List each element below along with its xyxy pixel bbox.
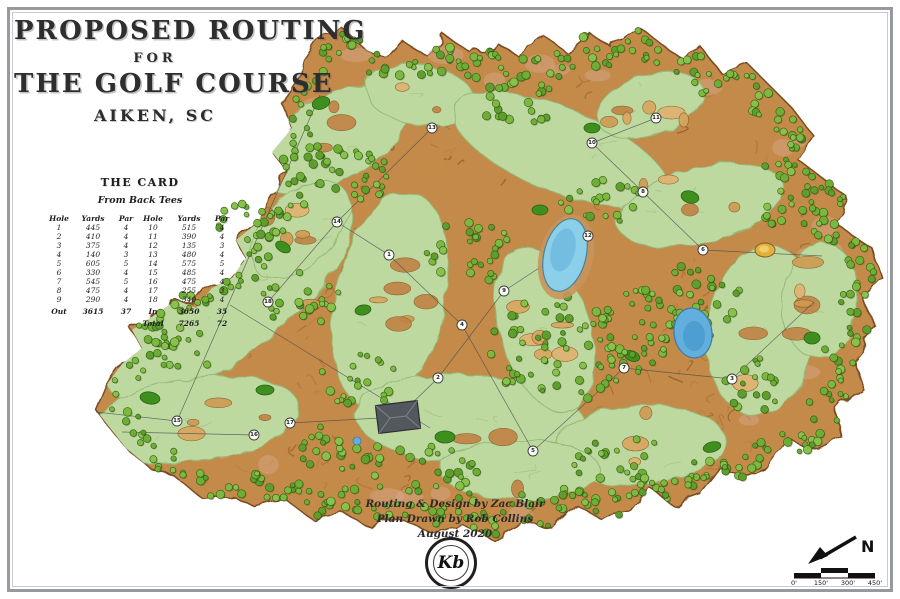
scorecard-cell: 4 (210, 250, 234, 259)
scorecard-cell: Hole (46, 214, 72, 223)
hole-marker: 6 (698, 245, 708, 255)
svg-text:5: 5 (531, 448, 535, 454)
title-block: PROPOSED ROUTING FOR THE GOLF COURSE AIK… (14, 16, 296, 125)
clubhouse-building (375, 401, 420, 434)
svg-text:15: 15 (173, 418, 181, 424)
scorecard-cell: 4 (210, 223, 234, 232)
scorecard-cell: 255 (168, 286, 210, 295)
hole-marker: 7 (619, 363, 629, 373)
compass-and-scale: N 0' 150' 300' 450' (786, 530, 890, 586)
scorecard-cell: Yards (168, 214, 210, 223)
scorecard-cell: 135 (168, 241, 210, 250)
landmark-layer (755, 243, 775, 257)
scorecard-cell: Total (138, 316, 168, 328)
title-for: FOR (14, 51, 296, 66)
scorecard-cell: 485 (168, 268, 210, 277)
svg-text:150': 150' (814, 579, 828, 586)
scorecard-table: HoleYardsParHoleYardsPar1445410515424104… (46, 214, 234, 328)
logo-monogram: Kb (433, 545, 469, 581)
scorecard-cell: 4 (210, 277, 234, 286)
svg-text:10: 10 (588, 140, 596, 146)
course-location: AIKEN, SC (14, 106, 296, 125)
svg-text:0': 0' (791, 579, 797, 586)
scorecard-cell: 5 (114, 259, 138, 268)
svg-text:300': 300' (841, 579, 855, 586)
scorecard-cell: 6 (46, 268, 72, 277)
scorecard-cell: 545 (72, 277, 114, 286)
hole-marker: 13 (427, 123, 437, 133)
hole-marker: 11 (651, 113, 661, 123)
scorecard-cell: 5 (46, 259, 72, 268)
scorecard-cell (72, 316, 114, 328)
scorecard-cell: 4 (114, 286, 138, 295)
scorecard-cell: 4 (210, 232, 234, 241)
scorecard-cell: Yards (72, 214, 114, 223)
page-title: PROPOSED ROUTING (14, 16, 296, 46)
hole-marker: 15 (172, 416, 182, 426)
north-arrow-icon: N (798, 530, 878, 564)
hole-marker: 17 (285, 418, 295, 428)
svg-text:3: 3 (730, 376, 734, 382)
svg-text:18: 18 (264, 299, 272, 305)
hole-marker: 12 (583, 231, 593, 241)
scorecard-cell: 10 (138, 223, 168, 232)
scorecard-cell: 290 (72, 295, 114, 304)
svg-text:8: 8 (641, 189, 645, 195)
scorecard-cell: 445 (72, 223, 114, 232)
scorecard-cell: 18 (138, 295, 168, 304)
scale-bar: 0' 150' 300' 450' (788, 564, 888, 586)
svg-text:11: 11 (652, 115, 660, 121)
scorecard-title: THE CARD (38, 176, 242, 189)
hole-marker: 9 (499, 286, 509, 296)
hole-marker: 5 (528, 446, 538, 456)
scorecard-cell: 8 (46, 286, 72, 295)
svg-text:6: 6 (701, 247, 705, 253)
scorecard-cell (46, 316, 72, 328)
scorecard-cell: 4 (114, 223, 138, 232)
scorecard-cell: 1 (46, 223, 72, 232)
scorecard-cell: 11 (138, 232, 168, 241)
scorecard-cell: 12 (138, 241, 168, 250)
hole-marker: 16 (249, 430, 259, 440)
scorecard-cell: 14 (138, 259, 168, 268)
scorecard-cell: 4 (210, 295, 234, 304)
hole-marker: 3 (727, 374, 737, 384)
scorecard-cell: Par (210, 214, 234, 223)
scorecard-cell: 4 (46, 250, 72, 259)
scorecard-cell: 35 (210, 304, 234, 316)
scorecard-cell: 480 (168, 250, 210, 259)
scorecard-cell: 475 (168, 277, 210, 286)
scorecard-cell: Out (46, 304, 72, 316)
hole-marker: 18 (263, 297, 273, 307)
scorecard-cell: 330 (72, 268, 114, 277)
hole-marker: 8 (638, 187, 648, 197)
scorecard-cell: 3 (114, 250, 138, 259)
scorecard-cell: 72 (210, 316, 234, 328)
credits-block: Routing & Design by Zac Blair Plan Drawn… (318, 497, 592, 542)
scorecard-cell: 16 (138, 277, 168, 286)
scorecard-cell: 7 (46, 277, 72, 286)
hole-marker: 14 (332, 217, 342, 227)
scorecard-cell (114, 316, 138, 328)
svg-text:12: 12 (584, 233, 592, 239)
scorecard-cell: 9 (46, 295, 72, 304)
scorecard-cell: 4 (114, 241, 138, 250)
scorecard-cell: 375 (72, 241, 114, 250)
scorecard-cell: Par (114, 214, 138, 223)
svg-text:2: 2 (436, 375, 440, 381)
svg-text:16: 16 (250, 432, 258, 438)
svg-text:1: 1 (387, 252, 391, 258)
hole-marker: 1 (384, 250, 394, 260)
hole-marker: 4 (457, 320, 467, 330)
scorecard-cell: 5 (210, 259, 234, 268)
scorecard-cell: 140 (72, 250, 114, 259)
credit-drawn: Plan Drawn by Rob Collins (318, 512, 592, 527)
scorecard-cell: 15 (138, 268, 168, 277)
scorecard-cell: 5 (114, 277, 138, 286)
scorecard-cell: 475 (72, 286, 114, 295)
scorecard-cell: 37 (114, 304, 138, 316)
scorecard-cell: 410 (72, 232, 114, 241)
scorecard-cell: Hole (138, 214, 168, 223)
scorecard-block: THE CARD From Back Tees HoleYardsParHole… (38, 176, 242, 328)
svg-text:17: 17 (286, 420, 294, 426)
svg-text:13: 13 (428, 125, 436, 131)
hole-marker: 2 (433, 373, 443, 383)
svg-text:4: 4 (460, 322, 464, 328)
scorecard-subtitle: From Back Tees (38, 195, 242, 206)
scorecard-cell: 17 (138, 286, 168, 295)
scorecard-cell: 605 (72, 259, 114, 268)
scorecard-cell: 575 (168, 259, 210, 268)
north-label: N (861, 537, 874, 556)
svg-text:14: 14 (333, 219, 341, 225)
course-name: THE GOLF COURSE (14, 69, 296, 99)
scorecard-cell: In (138, 304, 168, 316)
credit-design: Routing & Design by Zac Blair (318, 497, 592, 512)
scorecard-cell: 515 (168, 223, 210, 232)
scorecard-cell: 7265 (168, 316, 210, 328)
logo-badge: Kb (425, 537, 477, 589)
scorecard-cell: 3 (210, 241, 234, 250)
scorecard-cell: 4 (114, 268, 138, 277)
svg-text:7: 7 (622, 365, 626, 371)
scorecard-cell: 4 (114, 232, 138, 241)
scorecard-cell: 390 (168, 232, 210, 241)
svg-text:450': 450' (868, 579, 882, 586)
scorecard-cell: 3650 (168, 304, 210, 316)
scorecard-cell: 3615 (72, 304, 114, 316)
scorecard-cell: 13 (138, 250, 168, 259)
scorecard-cell: 3 (46, 241, 72, 250)
scorecard-cell: 4 (114, 295, 138, 304)
scorecard-cell: 2 (46, 232, 72, 241)
scorecard-cell: 3 (210, 286, 234, 295)
scorecard-cell: 340 (168, 295, 210, 304)
scorecard-cell: 4 (210, 268, 234, 277)
svg-text:9: 9 (502, 288, 506, 294)
hole-marker: 10 (587, 138, 597, 148)
